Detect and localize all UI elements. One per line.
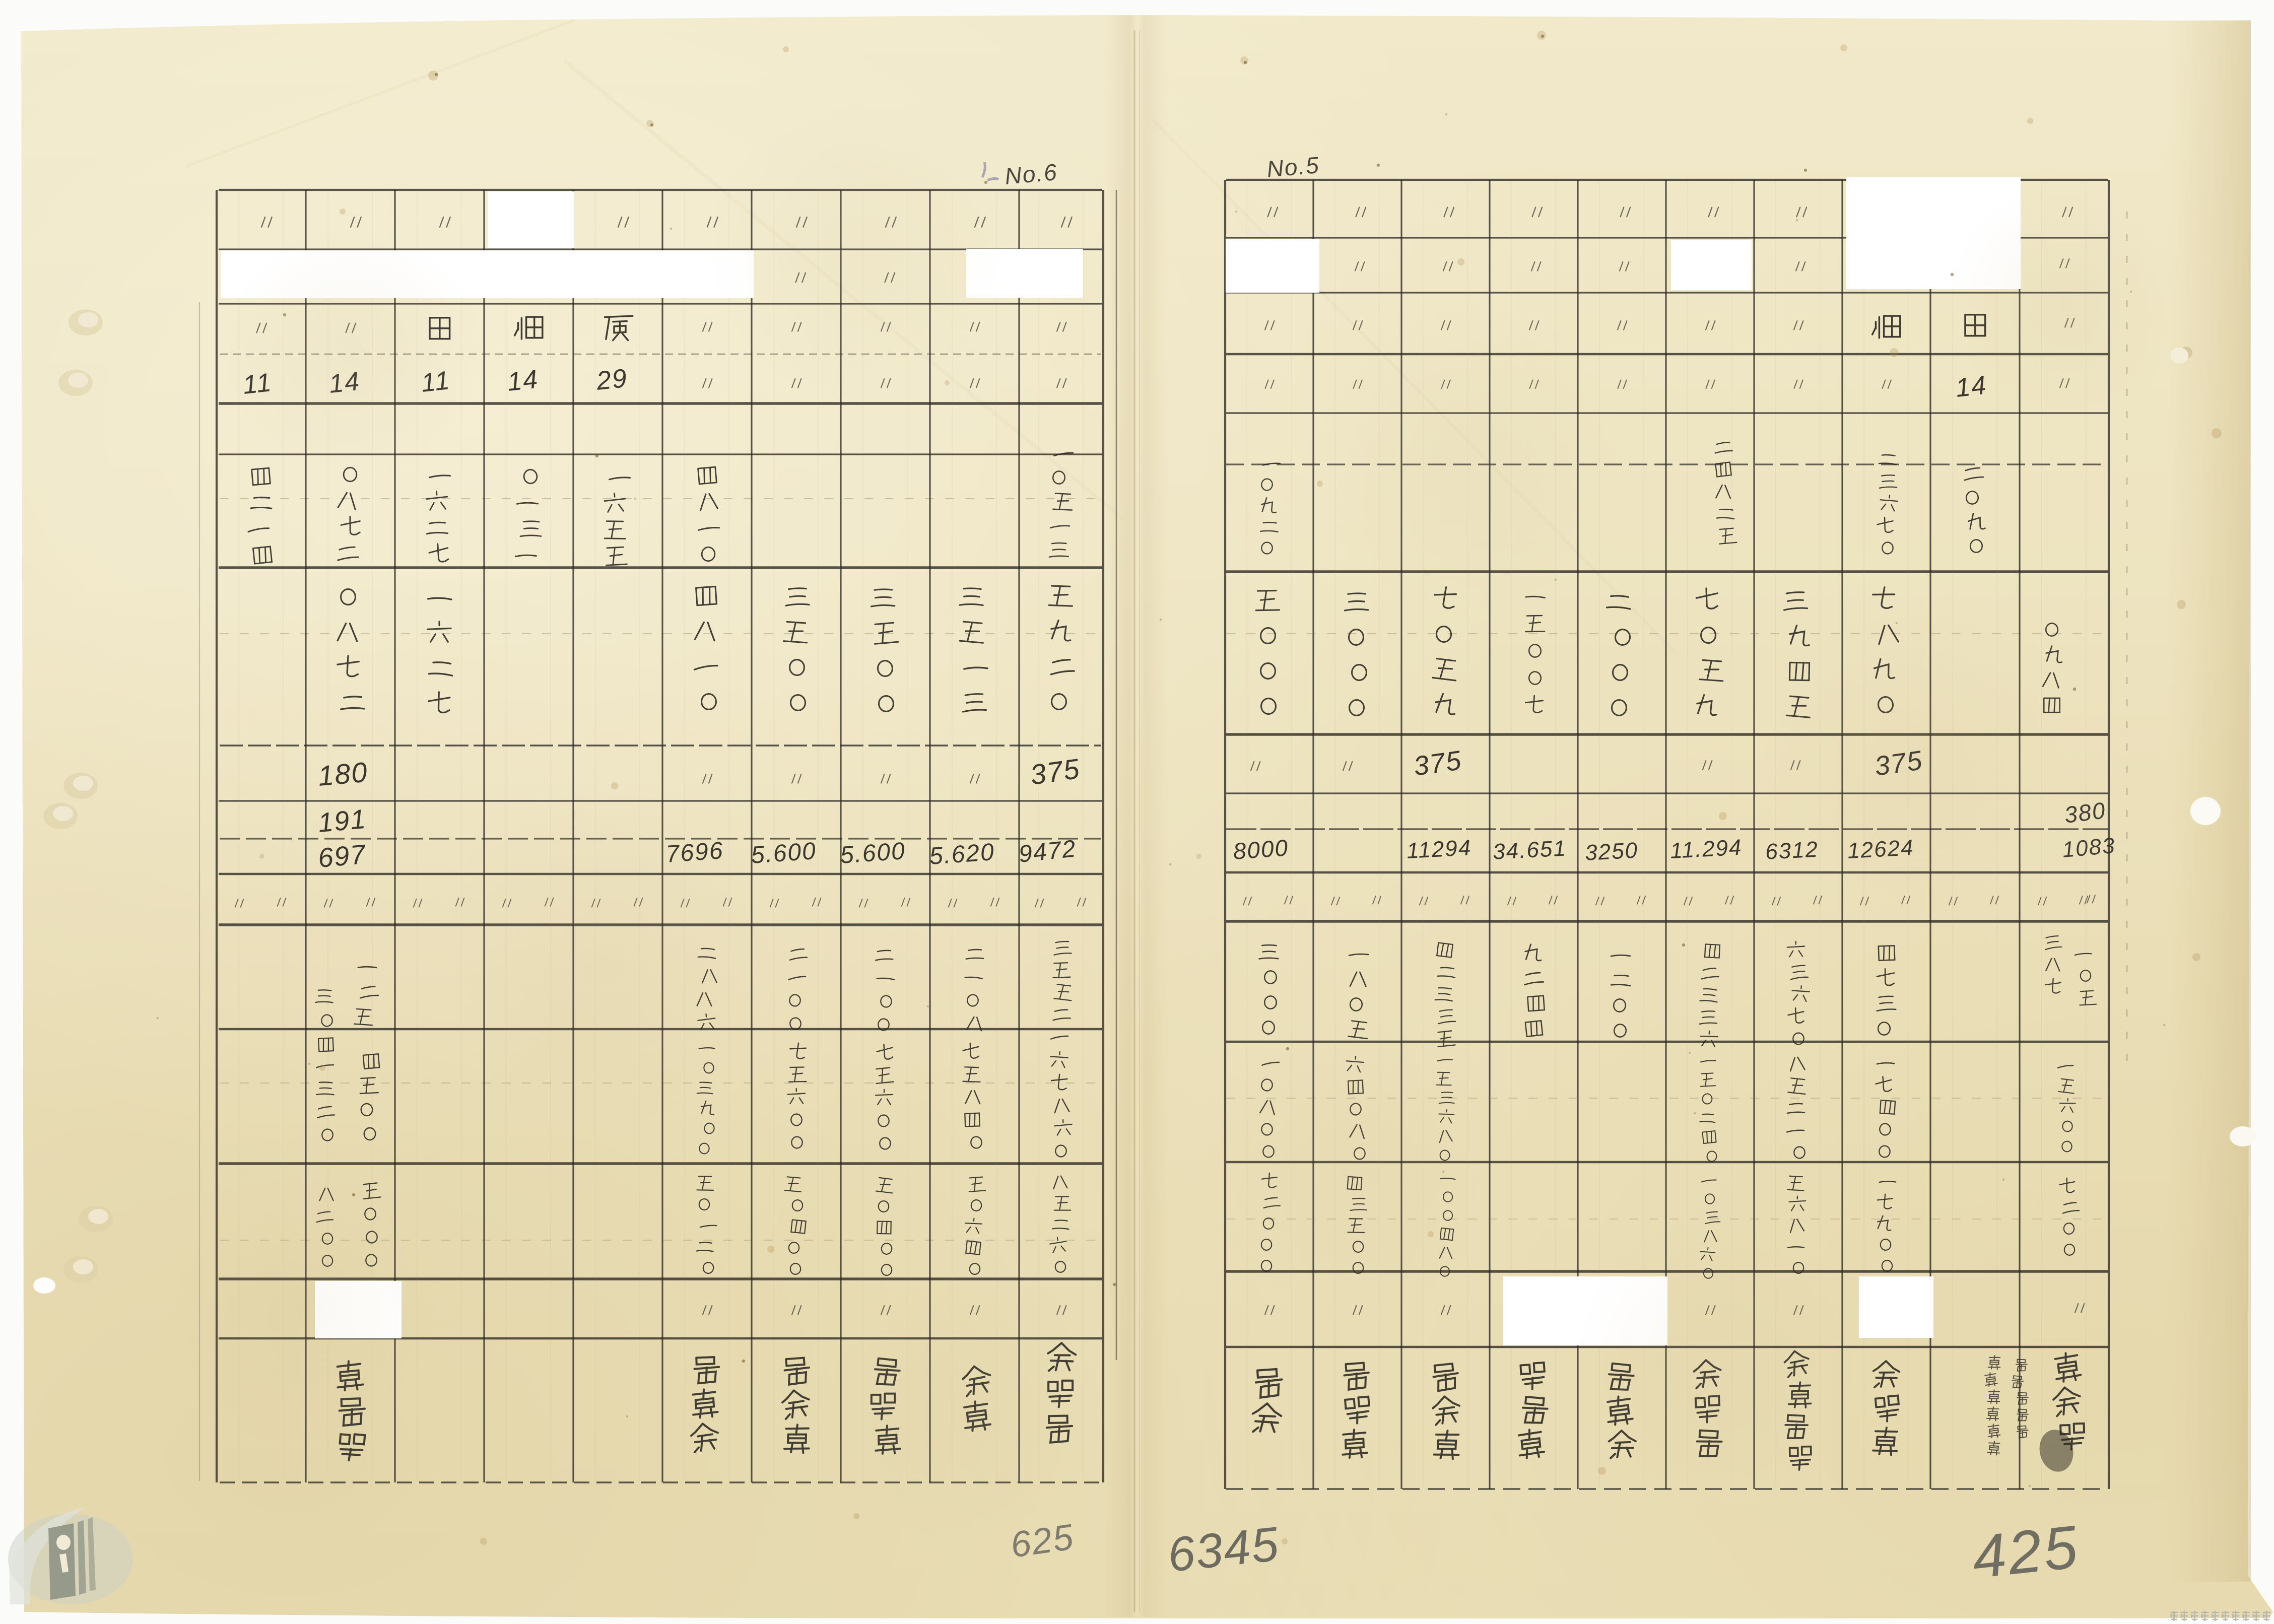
svg-text:180: 180 bbox=[317, 756, 370, 792]
svg-text:11.294: 11.294 bbox=[1669, 835, 1743, 863]
svg-text:191: 191 bbox=[317, 804, 368, 838]
svg-text:697: 697 bbox=[317, 839, 368, 873]
svg-text:No.5: No.5 bbox=[1265, 152, 1320, 182]
svg-text:5.620: 5.620 bbox=[928, 839, 996, 870]
svg-text:14: 14 bbox=[506, 365, 540, 397]
svg-text:5.600: 5.600 bbox=[750, 838, 818, 869]
svg-text:No.6: No.6 bbox=[1004, 159, 1058, 189]
svg-text:3250: 3250 bbox=[1584, 838, 1639, 865]
svg-text:34.651: 34.651 bbox=[1492, 836, 1567, 864]
svg-text:11294: 11294 bbox=[1406, 835, 1472, 863]
svg-text:29: 29 bbox=[594, 364, 629, 396]
svg-text:1083: 1083 bbox=[2061, 833, 2117, 862]
svg-text:380: 380 bbox=[2063, 797, 2107, 828]
svg-text:5.600: 5.600 bbox=[839, 838, 907, 869]
svg-text:8000: 8000 bbox=[1232, 834, 1290, 864]
svg-text:425: 425 bbox=[1969, 1513, 2083, 1591]
